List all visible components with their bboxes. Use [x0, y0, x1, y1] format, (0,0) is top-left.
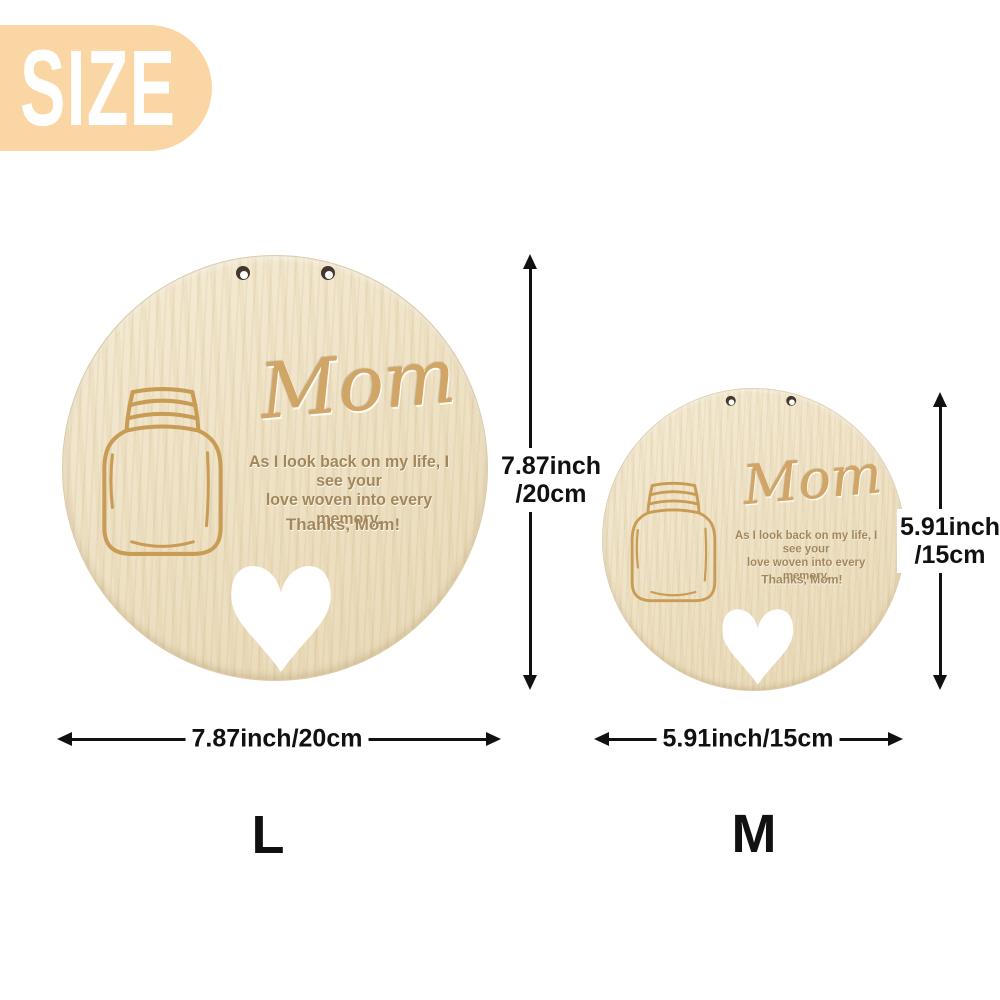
wood-disc: Mom As I look back on my life, I see you…: [62, 255, 488, 681]
size-chart-canvas: SIZE Mom As I look back on my life, I se…: [0, 0, 1000, 1000]
size-letter-medium: M: [732, 803, 777, 865]
arrow-right-icon: [486, 732, 501, 746]
wood-disc: Mom As I look back on my life, I see you…: [602, 388, 905, 691]
width-label-medium: 5.91inch/15cm: [657, 724, 840, 755]
arrow-right-icon: [888, 732, 903, 746]
quote-line-1: As I look back on my life, I see your: [242, 453, 455, 491]
plaque-large: Mom As I look back on my life, I see you…: [62, 255, 488, 681]
heart-cutout-icon: [229, 562, 333, 674]
width-label-large: 7.87inch/20cm: [186, 724, 369, 755]
size-letter-large: L: [252, 804, 285, 866]
hanging-hole-icon: [726, 396, 736, 406]
plaque-medium: Mom As I look back on my life, I see you…: [602, 388, 905, 691]
size-badge-label: SIZE: [20, 34, 176, 142]
quote-line-1: As I look back on my life, I see your: [730, 529, 882, 556]
arrow-down-icon: [933, 675, 947, 690]
plaque-title: Mom: [234, 322, 482, 447]
mason-jar-icon: [628, 478, 718, 604]
hanging-hole-icon: [236, 266, 250, 280]
hole-inner: [789, 399, 795, 405]
height-label-medium-cm: /15cm: [900, 541, 1000, 569]
height-label-large-inch: 7.87inch: [501, 452, 601, 480]
hole-inner: [325, 271, 333, 279]
arrow-down-icon: [523, 675, 537, 690]
mason-jar-icon: [99, 382, 226, 559]
hanging-hole-icon: [786, 396, 796, 406]
hole-inner: [729, 399, 735, 405]
plaque-title: Mom: [724, 435, 901, 524]
height-label-large-cm: /20cm: [501, 480, 601, 508]
size-badge: SIZE: [0, 25, 212, 151]
height-label-large: 7.87inch /20cm: [498, 448, 604, 512]
height-label-medium: 5.91inch /15cm: [897, 509, 1000, 573]
hanging-hole-icon: [321, 266, 335, 280]
height-label-medium-inch: 5.91inch: [900, 513, 1000, 541]
hole-inner: [240, 271, 248, 279]
plaque-signature: Thanks, Mom!: [752, 573, 852, 587]
heart-cutout-icon: [721, 606, 795, 686]
plaque-signature: Thanks, Mom!: [273, 515, 413, 535]
